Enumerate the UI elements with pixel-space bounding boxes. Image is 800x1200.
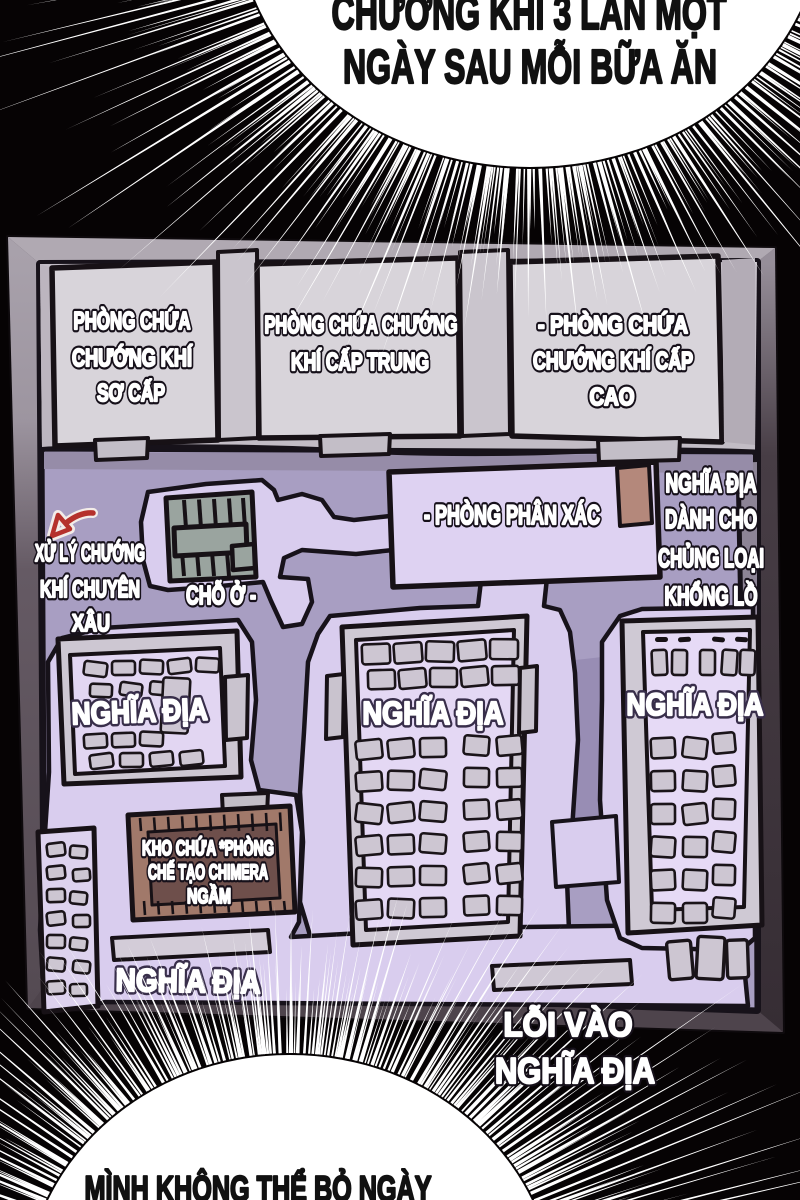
svg-text:- PHÒNG CHỨA: - PHÒNG CHỨA xyxy=(538,311,688,339)
svg-text:CHƯƠNG KHÍ 3 LẦN MỘT: CHƯƠNG KHÍ 3 LẦN MỘT xyxy=(332,0,727,40)
svg-text:MÌNH KHÔNG THỂ BỎ NGÀY: MÌNH KHÔNG THỂ BỎ NGÀY xyxy=(85,1168,432,1200)
svg-text:NGHĨA ĐỊA: NGHĨA ĐỊA xyxy=(666,468,757,498)
svg-text:LỖI VÀO: LỖI VÀO xyxy=(504,1005,633,1044)
svg-text:NGHĨA ĐỊA: NGHĨA ĐỊA xyxy=(71,692,208,732)
svg-text:NGHĨA ĐỊA: NGHĨA ĐỊA xyxy=(627,687,764,722)
svg-text:KHÍ CHUYÊN: KHÍ CHUYÊN xyxy=(40,575,140,603)
svg-text:XÂU: XÂU xyxy=(72,609,110,637)
svg-text:CHƯỚNG KHÍ: CHƯỚNG KHÍ xyxy=(72,344,193,372)
svg-text:PHÒNG CHỨA CHƯỚNG: PHÒNG CHỨA CHƯỚNG xyxy=(265,311,458,339)
svg-text:CHẾ TẠO CHIMERA: CHẾ TẠO CHIMERA xyxy=(148,860,268,884)
svg-text:NGHĨA ĐỊA: NGHĨA ĐỊA xyxy=(363,695,504,731)
svg-text:KHÍ CẤP TRUNG: KHÍ CẤP TRUNG xyxy=(291,348,429,376)
svg-text:CHƯỚNG KHÍ CẤP: CHƯỚNG KHÍ CẤP xyxy=(533,347,693,375)
svg-text:NGHĨA ĐỊA: NGHĨA ĐỊA xyxy=(115,962,261,1001)
svg-text:NGÀY SAU MỖI BỮA ĂN: NGÀY SAU MỖI BỮA ĂN xyxy=(343,39,717,94)
svg-text:- PHÒNG PHÂN XÁC: - PHÒNG PHÂN XÁC xyxy=(424,499,600,530)
svg-text:KHỔNG LỒ: KHỔNG LỒ xyxy=(665,581,758,611)
svg-text:PHÒNG CHỨA: PHÒNG CHỨA xyxy=(74,307,191,335)
svg-text:KHO CHỨA *PHÒNG: KHO CHỨA *PHÒNG xyxy=(142,836,274,860)
svg-text:SƠ CẤP: SƠ CẤP xyxy=(97,379,165,407)
svg-text:CHỖ Ở -: CHỖ Ở - xyxy=(186,580,256,610)
svg-text:NGHĨA ĐỊA: NGHĨA ĐỊA xyxy=(495,1050,655,1091)
svg-text:DÀNH CHO: DÀNH CHO xyxy=(665,504,757,534)
svg-text:CAO: CAO xyxy=(590,384,635,411)
svg-text:CHỦNG LOẠI: CHỦNG LOẠI xyxy=(658,543,764,573)
svg-text:NGẦM: NGẦM xyxy=(187,884,231,908)
svg-text:XỬ LÝ CHƯỚNG: XỬ LÝ CHƯỚNG xyxy=(35,539,145,567)
